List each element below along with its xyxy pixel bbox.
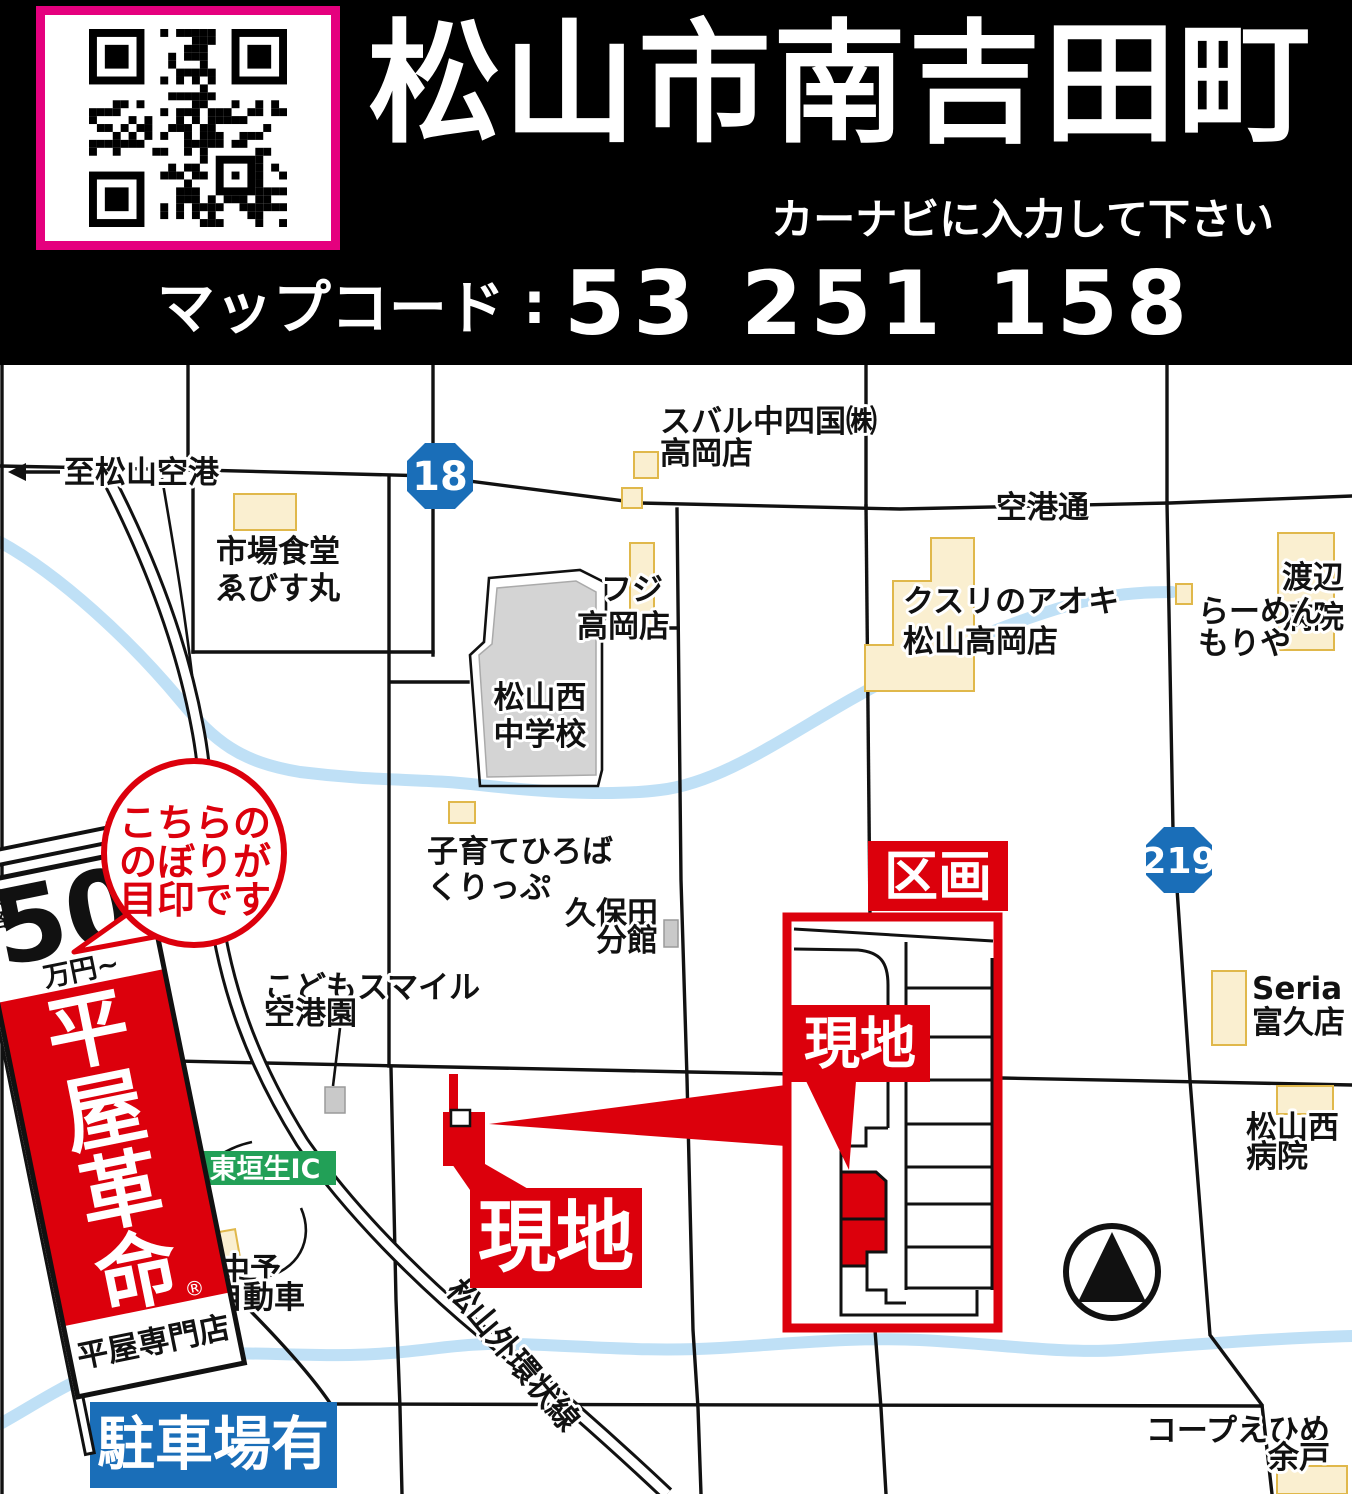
school-label: 松山西 bbox=[494, 680, 587, 716]
landmark-label: 分館 bbox=[596, 923, 658, 959]
landmark-label: くりっぷ bbox=[427, 870, 551, 906]
road-label-to-airport: 至松山空港 bbox=[64, 455, 220, 491]
landmark-label: 高岡店 bbox=[660, 436, 753, 472]
landmark-label: ゑびす丸 bbox=[216, 571, 340, 607]
school-label: 中学校 bbox=[494, 717, 587, 753]
north-arrow-icon bbox=[1066, 1226, 1158, 1318]
header: 松山市南吉田町 カーナビに入力して下さい マップコード : 53 251 158 bbox=[0, 0, 1352, 365]
landmark-label: 渡辺 bbox=[1282, 560, 1344, 596]
landmark-label: らーめん bbox=[1198, 594, 1322, 630]
qr-code-icon bbox=[89, 29, 287, 227]
building bbox=[1176, 584, 1192, 604]
page-title: 松山市南吉田町 bbox=[368, 12, 1343, 158]
landmark-label: Seria bbox=[1252, 971, 1342, 1007]
building bbox=[664, 920, 678, 947]
landmark-label: 松山高岡店 bbox=[903, 624, 1058, 660]
road-bottom-horizontal bbox=[330, 1404, 1262, 1406]
landmark-label: 富久店 bbox=[1252, 1005, 1345, 1041]
landmark-label: 市場食堂 bbox=[216, 534, 340, 570]
building bbox=[234, 494, 296, 530]
landmark-label: フジ bbox=[601, 572, 663, 608]
building bbox=[1212, 971, 1246, 1045]
building bbox=[449, 802, 475, 823]
mapcode-row: マップコード : 53 251 158 bbox=[0, 248, 1352, 358]
landmark-label: 子育てひろば bbox=[427, 834, 613, 870]
qr-code bbox=[36, 6, 340, 250]
building bbox=[634, 452, 658, 478]
inset-title: 区画 bbox=[884, 845, 992, 908]
inset-site-label: 現地 bbox=[804, 1012, 916, 1077]
mapcode-label: マップコード bbox=[157, 261, 505, 345]
speech-bubble-line: こちらの bbox=[119, 801, 271, 845]
route-219-number: 219 bbox=[1141, 841, 1216, 882]
landmark-label: 空港園 bbox=[264, 996, 357, 1032]
landmark-label: 高岡店 bbox=[577, 609, 670, 645]
parking-badge-label: 駐車場有 bbox=[97, 1410, 329, 1478]
building bbox=[622, 488, 642, 508]
speech-bubble-line: 目印です bbox=[119, 878, 271, 922]
plot-inset: 現地 区画 bbox=[787, 841, 1008, 1328]
building bbox=[325, 1087, 345, 1113]
flyer: 松山市南吉田町 カーナビに入力して下さい マップコード : 53 251 158 bbox=[0, 0, 1352, 1494]
site-marker-notch bbox=[451, 1110, 470, 1126]
landmark-label: 病院 bbox=[1246, 1139, 1308, 1175]
ic-badge-label: 東垣生IC bbox=[210, 1154, 321, 1185]
route-18-number: 18 bbox=[412, 454, 468, 500]
access-map: 松山西 中学校 スバル中四国㈱ 高岡店 市場食堂 ゑびす丸 フジ bbox=[0, 365, 1352, 1494]
mapcode-separator: : bbox=[523, 269, 546, 337]
mapcode-value: 53 251 158 bbox=[564, 252, 1195, 355]
landmark-label: 余戸 bbox=[1267, 1440, 1330, 1476]
landmark-label: スバル中四国㈱ bbox=[660, 404, 877, 440]
inset-site-plot bbox=[841, 1172, 886, 1219]
navi-instruction: カーナビに入力して下さい bbox=[771, 186, 1274, 247]
site-label: 現地 bbox=[478, 1193, 634, 1283]
road-label-kukoudori: 空港通 bbox=[996, 490, 1089, 526]
landmark-label: もりや bbox=[1198, 626, 1291, 662]
landmark-label: クスリのアオキ bbox=[903, 584, 1119, 620]
